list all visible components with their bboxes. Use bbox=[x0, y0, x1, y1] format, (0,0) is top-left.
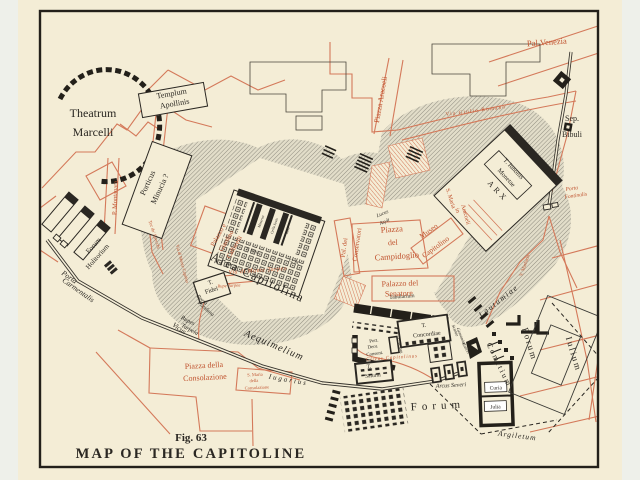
label-piazza-camp-1: Piazza bbox=[380, 223, 403, 235]
label-bibuli: Bibuli bbox=[562, 130, 583, 139]
label-montanara: P. Montanara bbox=[111, 181, 119, 216]
concordia-porch bbox=[428, 342, 452, 363]
figure-title: MAP OF THE CAPITOLINE bbox=[76, 446, 307, 462]
label-sep: Sep. bbox=[565, 114, 579, 123]
label-curia: Curia bbox=[490, 385, 503, 391]
capitoline-map: Minerva Cella Iovis Iuno T. Iovis O. M. bbox=[0, 0, 640, 480]
label-marcelli: Marcelli bbox=[73, 125, 114, 139]
scanned-map-page: Minerva Cella Iovis Iuno T. Iovis O. M. bbox=[0, 0, 640, 480]
figure-number: Fig. 63 bbox=[175, 432, 207, 444]
label-smcons-1: S. Maria bbox=[247, 372, 263, 378]
label-senatore-1: Palazzo del bbox=[381, 278, 419, 288]
label-julia: Julia bbox=[490, 404, 501, 410]
label-senatore-2: Senatore bbox=[385, 289, 414, 299]
label-theatrum: Theatrum bbox=[70, 106, 117, 120]
label-smcons-2: della bbox=[249, 378, 258, 383]
label-piazza-camp-2: del bbox=[388, 238, 399, 248]
